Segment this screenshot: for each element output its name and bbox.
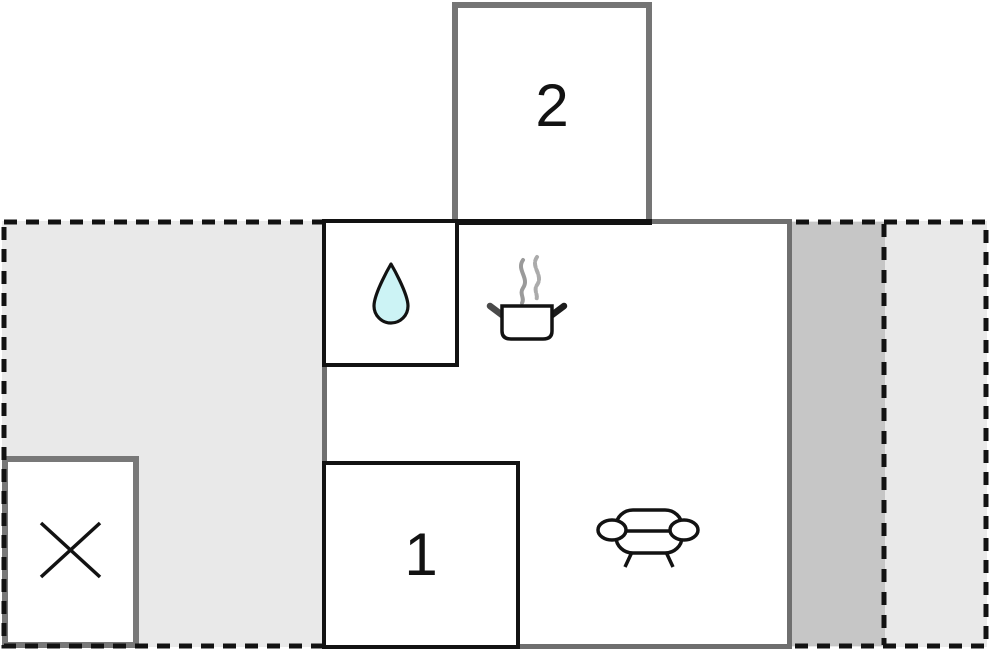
sofa-armrest-right	[670, 520, 698, 540]
pot-handle-right	[552, 306, 564, 315]
water-drop-icon	[371, 261, 411, 325]
annex-box	[2, 456, 139, 648]
bathroom-box	[322, 219, 459, 367]
steam-line-right	[535, 257, 539, 300]
room-2: 2	[452, 2, 652, 221]
room-2-label: 2	[535, 76, 568, 136]
room-1-label: 1	[404, 525, 437, 585]
sofa-armrest-left	[598, 520, 626, 540]
floor-plan-canvas: 2 1	[0, 0, 992, 652]
sofa-icon	[592, 500, 704, 570]
room-1: 1	[322, 461, 520, 649]
cross-icon	[8, 462, 133, 642]
steam-line-left	[521, 260, 525, 303]
pot-body	[502, 306, 552, 339]
pot-handle-left	[490, 306, 502, 315]
terrace-strip	[789, 222, 885, 646]
cooking-pot-with-steam-icon	[486, 252, 570, 344]
